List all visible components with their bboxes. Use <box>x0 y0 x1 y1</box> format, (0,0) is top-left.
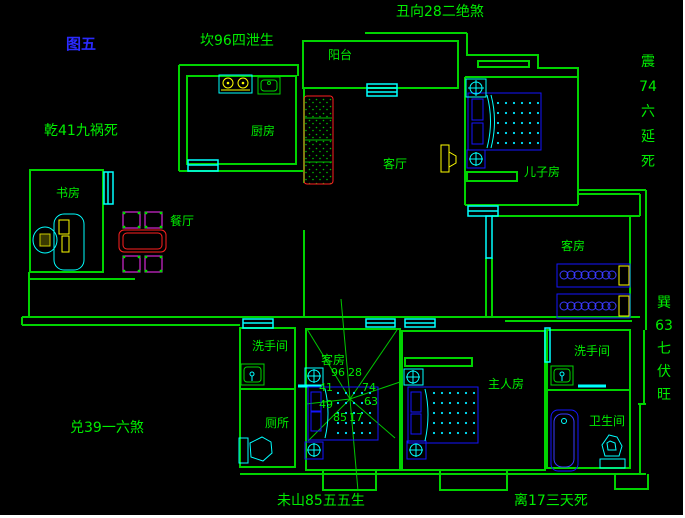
sink-left <box>241 364 264 385</box>
room-label-toilet: 厕所 <box>265 417 289 430</box>
room-label-washroom-right: 洗手间 <box>574 345 610 358</box>
dining-chairs <box>123 212 163 273</box>
fengshui-label-kan: 坎96四泄生 <box>200 34 274 49</box>
room-label-sons-room: 儿子房 <box>524 166 560 179</box>
study-desk <box>54 214 84 270</box>
bathtub <box>551 410 578 471</box>
nightstand-compass-mid-bottom <box>305 442 323 459</box>
nightstand-compass-master-bottom <box>407 441 426 459</box>
room-label-dining-room: 餐厅 <box>170 215 194 228</box>
twin-bed-bottom <box>557 294 630 318</box>
compass-number-bottom-left: 85 <box>333 412 347 424</box>
fengshui-label-dui: 兑39一六煞 <box>70 421 144 436</box>
room-label-study: 书房 <box>56 187 80 200</box>
tv <box>441 145 456 172</box>
fengshui-label-wei: 未山85五五生 <box>277 494 365 509</box>
fengshui-label-li: 离17三天死 <box>514 494 588 509</box>
compass-number-right-upper: 74 <box>362 382 376 394</box>
room-label-washroom-left: 洗手间 <box>252 340 288 353</box>
figure-label: 图五 <box>66 38 96 51</box>
room-label-bathroom: 卫生间 <box>589 415 625 428</box>
compass-number-top-right: 28 <box>348 367 362 379</box>
floorplan-canvas[interactable]: 图五 坎96四泄生 丑向28二绝煞 乾41九祸死 震74六延死 巽63七伏旺 兑… <box>0 0 685 518</box>
room-label-master-bedroom: 主人房 <box>488 378 524 391</box>
toilet-right <box>600 435 625 468</box>
stove <box>219 75 252 93</box>
nightstand-compass-son-top <box>466 79 486 97</box>
compass-number-left-lower: 49 <box>319 399 333 411</box>
room-label-guest-room-right: 客房 <box>561 240 585 253</box>
room-label-living-room: 客厅 <box>383 158 407 171</box>
floorplan-drawing <box>0 0 685 518</box>
room-label-balcony: 阳台 <box>328 49 352 62</box>
dining-table <box>119 230 166 252</box>
compass-number-left-upper: 41 <box>319 382 333 394</box>
compass-number-top-left: 96 <box>331 367 345 379</box>
fengshui-label-qian: 乾41九祸死 <box>44 124 118 139</box>
room-label-kitchen: 厨房 <box>251 125 275 138</box>
fengshui-label-zhen: 震74六延死 <box>638 50 658 175</box>
study-chair <box>33 227 57 253</box>
nightstand-compass-master-top <box>404 369 423 385</box>
twin-bed-top <box>557 264 630 287</box>
compass-number-bottom-right: 17 <box>349 412 363 424</box>
nightstand-compass-son-bottom <box>467 150 485 168</box>
fengshui-label-chou: 丑向28二绝煞 <box>396 5 484 20</box>
master-bed <box>408 387 478 443</box>
compass-number-right-lower: 63 <box>364 396 378 408</box>
sons-bed <box>468 93 541 150</box>
fengshui-label-xun: 巽63七伏旺 <box>654 292 674 407</box>
sink-right <box>551 366 573 385</box>
toilet-left <box>239 437 272 463</box>
sofa <box>304 96 333 184</box>
kitchen-sink <box>258 77 280 94</box>
